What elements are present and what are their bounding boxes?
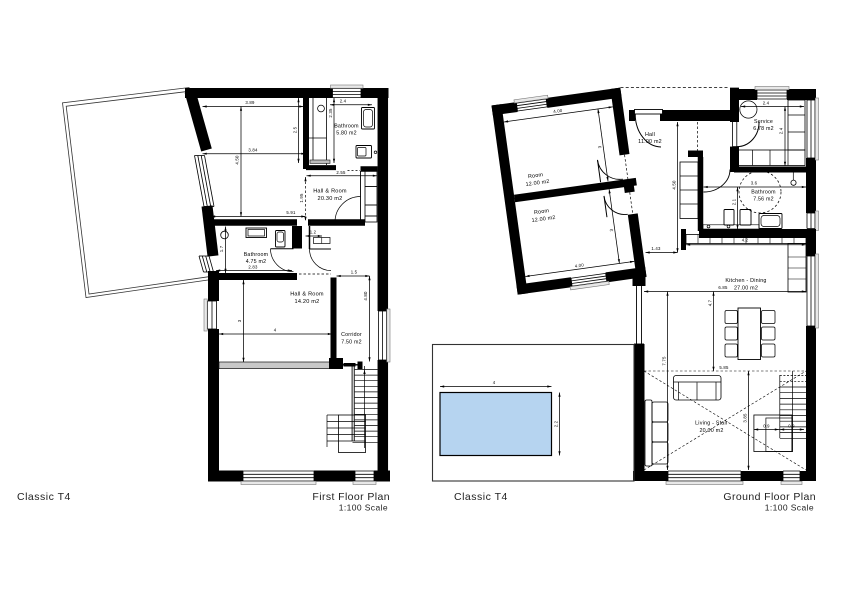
svg-text:Living - Stair: Living - Stair (695, 421, 728, 427)
svg-text:1.43: 1.43 (651, 246, 661, 251)
svg-text:7.75: 7.75 (661, 356, 666, 366)
svg-text:4.2: 4.2 (742, 237, 749, 242)
svg-text:4.7: 4.7 (707, 299, 712, 306)
svg-text:Hall & Room: Hall & Room (313, 189, 347, 195)
svg-text:20.00 m2: 20.00 m2 (699, 428, 723, 434)
svg-text:Hall & Room: Hall & Room (290, 292, 324, 298)
svg-text:Corridor: Corridor (341, 332, 362, 338)
svg-text:5.80 m2: 5.80 m2 (336, 131, 357, 137)
svg-text:Bathroom: Bathroom (751, 190, 776, 196)
svg-text:7.56 m2: 7.56 m2 (753, 197, 774, 203)
svg-text:Classic T4: Classic T4 (454, 491, 508, 503)
svg-text:6.78 m2: 6.78 m2 (753, 126, 774, 132)
svg-text:4.80: 4.80 (363, 291, 368, 301)
svg-text:1.5: 1.5 (351, 270, 358, 275)
svg-text:2.1: 2.1 (731, 198, 736, 205)
svg-text:6.85: 6.85 (718, 285, 728, 290)
svg-text:Service: Service (754, 119, 773, 125)
svg-text:Ground Floor Plan: Ground Floor Plan (723, 491, 816, 503)
svg-text:2.5: 2.5 (292, 126, 297, 133)
svg-text:1.7: 1.7 (219, 245, 224, 252)
svg-text:11.00 m2: 11.00 m2 (638, 139, 662, 145)
svg-text:3.89: 3.89 (245, 100, 255, 105)
svg-text:2.83: 2.83 (248, 265, 258, 270)
svg-text:5.91: 5.91 (286, 210, 296, 215)
svg-text:2.4: 2.4 (340, 98, 347, 103)
svg-text:7.50 m2: 7.50 m2 (341, 340, 362, 346)
svg-text:Classic T4: Classic T4 (17, 491, 71, 503)
svg-text:4.50: 4.50 (671, 180, 676, 190)
svg-text:2.2: 2.2 (553, 420, 558, 427)
svg-text:2.4: 2.4 (763, 101, 770, 106)
svg-text:First Floor Plan: First Floor Plan (312, 491, 390, 503)
svg-text:0.9: 0.9 (788, 423, 795, 428)
svg-text:27.00 m2: 27.00 m2 (734, 286, 758, 292)
svg-text:Bathroom: Bathroom (244, 252, 269, 258)
svg-text:3: 3 (237, 319, 242, 322)
svg-text:2.4: 2.4 (779, 127, 784, 134)
svg-text:5.85: 5.85 (719, 365, 729, 370)
svg-text:Kitchen - Dining: Kitchen - Dining (725, 278, 766, 284)
svg-text:1:100 Scale: 1:100 Scale (765, 503, 814, 513)
svg-text:4: 4 (274, 328, 277, 333)
svg-text:1.2: 1.2 (310, 230, 317, 235)
svg-text:4.50: 4.50 (234, 155, 239, 165)
svg-text:Hall: Hall (645, 132, 655, 138)
svg-text:14.20 m2: 14.20 m2 (295, 299, 320, 305)
svg-text:4: 4 (493, 380, 496, 385)
svg-text:0.9: 0.9 (763, 423, 770, 428)
svg-text:1:100 Scale: 1:100 Scale (339, 503, 388, 513)
svg-text:Bathroom: Bathroom (334, 124, 359, 130)
svg-text:20.30 m2: 20.30 m2 (318, 196, 343, 202)
svg-text:1.95: 1.95 (299, 193, 304, 203)
svg-text:3.6: 3.6 (751, 181, 758, 186)
svg-text:2.35: 2.35 (328, 108, 333, 118)
svg-text:4.75 m2: 4.75 m2 (246, 259, 267, 265)
svg-text:3.84: 3.84 (248, 147, 258, 152)
svg-text:2.55: 2.55 (336, 170, 346, 175)
svg-text:3.85: 3.85 (742, 413, 747, 423)
